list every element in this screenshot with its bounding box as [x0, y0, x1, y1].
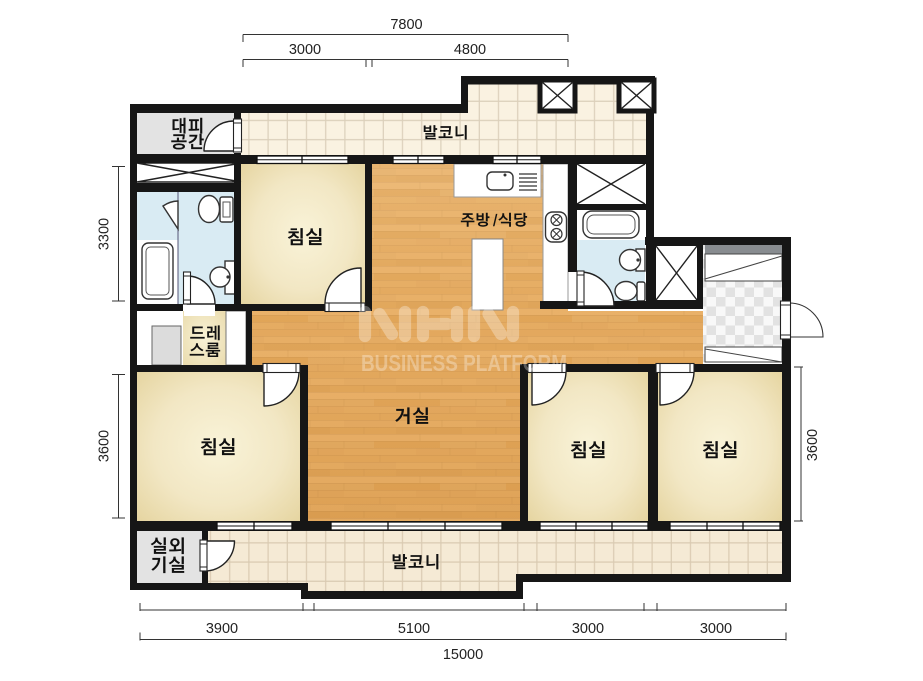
- svg-text:3000: 3000: [700, 621, 732, 637]
- svg-text:7800: 7800: [390, 17, 422, 33]
- svg-text:3300: 3300: [97, 218, 113, 250]
- svg-text:3000: 3000: [289, 42, 321, 58]
- svg-text:5100: 5100: [398, 621, 430, 637]
- svg-text:3600: 3600: [805, 429, 821, 461]
- svg-text:BUSINESS PLATFORM: BUSINESS PLATFORM: [361, 350, 567, 376]
- svg-text:15000: 15000: [443, 647, 483, 663]
- svg-text:3600: 3600: [97, 430, 113, 462]
- svg-text:3000: 3000: [572, 621, 604, 637]
- svg-text:3900: 3900: [206, 621, 238, 637]
- svg-text:4800: 4800: [454, 42, 486, 58]
